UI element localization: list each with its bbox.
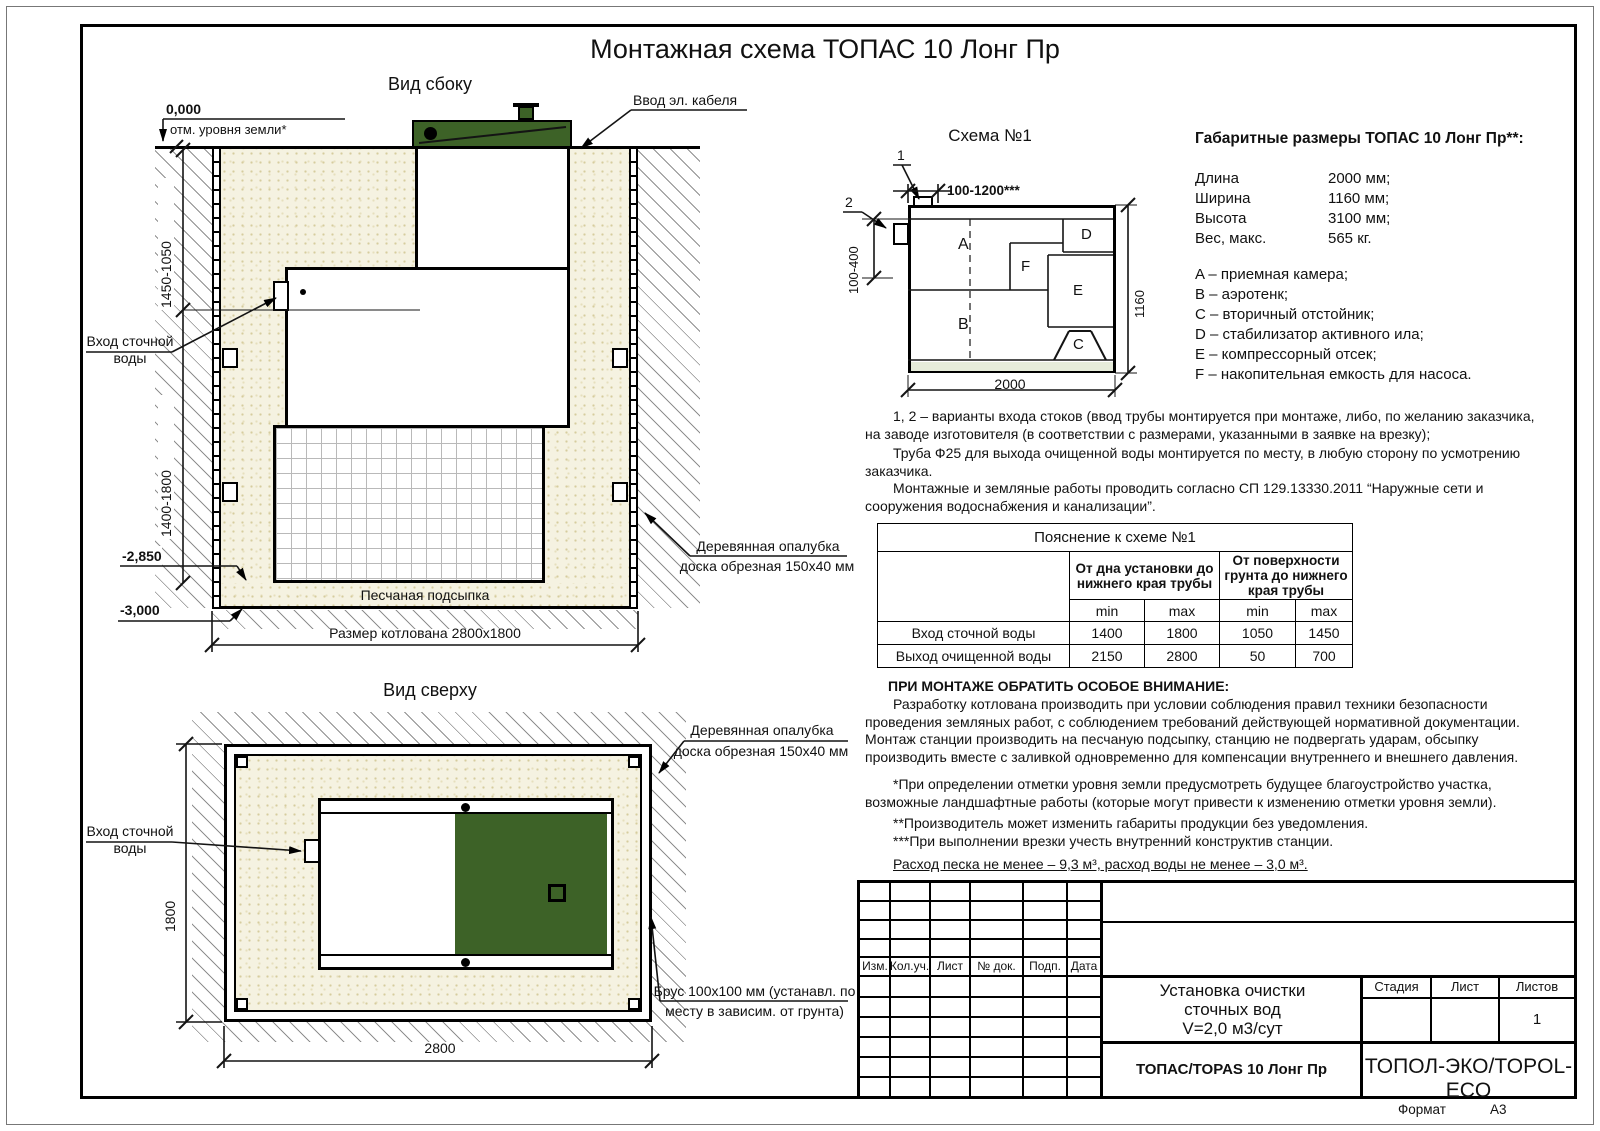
schema-lines	[843, 165, 1137, 397]
drawing-lines-layer	[0, 0, 1600, 1131]
drawing-sheet: Монтажная схема ТОПАС 10 Лонг Пр Вид сбо…	[0, 0, 1600, 1131]
side-view-lines	[86, 110, 847, 652]
top-view-lines	[86, 737, 848, 1068]
